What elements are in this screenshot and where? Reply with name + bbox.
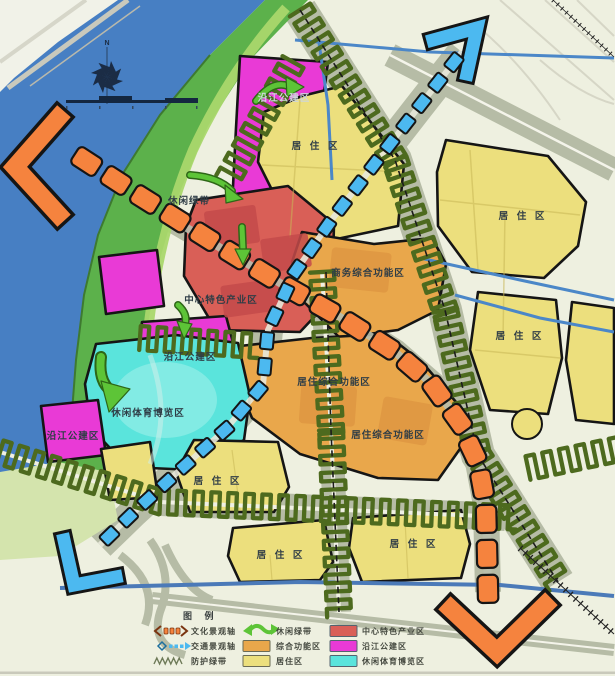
label-central-industry: 中心特色产业区 bbox=[184, 294, 258, 306]
legend-label-protection-green: 防护绿带 bbox=[191, 656, 227, 666]
legend-label-traffic-axis: 交通景观轴 bbox=[191, 641, 236, 651]
legend-label-comprehensive: 综合功能区 bbox=[276, 641, 321, 651]
label-residential-top-right: 居 住 区 bbox=[499, 210, 548, 222]
label-riverside-public-left: 沿江公建区 bbox=[47, 430, 100, 442]
axis-block bbox=[257, 358, 271, 376]
stadium-circle bbox=[512, 409, 542, 439]
legend-label-riverside-public: 沿江公建区 bbox=[362, 641, 407, 651]
label-residential-bottom-left: 居 住 区 bbox=[194, 475, 243, 487]
swatch-residential bbox=[243, 656, 270, 667]
legend-label-leisure-expo: 休闲体育博览区 bbox=[361, 656, 425, 666]
zone-residential-far-right bbox=[566, 302, 614, 424]
legend-title: 图 例 bbox=[183, 610, 219, 621]
axis-block bbox=[469, 469, 494, 500]
label-residential-complex-2: 居住综合功能区 bbox=[351, 429, 425, 441]
axis-block bbox=[260, 332, 274, 350]
compass-north-label: N bbox=[105, 40, 110, 47]
label-riverside-public-top: 沿江公建区 bbox=[258, 92, 311, 104]
legend-label-residential: 居住区 bbox=[276, 656, 303, 666]
swatch-comprehensive bbox=[243, 641, 270, 652]
axis-block bbox=[477, 575, 498, 603]
swatch-riverside-public bbox=[330, 641, 357, 652]
label-leisure-green-belt: 休闲绿带 bbox=[167, 195, 210, 207]
label-residential-right: 居 住 区 bbox=[496, 330, 545, 342]
legend-label-culture-axis: 文化景观轴 bbox=[191, 626, 236, 636]
swatch-central-industry bbox=[330, 626, 357, 637]
label-residential-complex-1: 居住综合功能区 bbox=[297, 376, 371, 388]
label-leisure-sports-expo: 休闲体育博览区 bbox=[110, 407, 185, 419]
label-business-complex: 商务综合功能区 bbox=[331, 267, 405, 279]
label-riverside-public-mid: 沿江公建区 bbox=[164, 351, 217, 363]
legend-label-leisure-green: 休闲绿带 bbox=[275, 626, 312, 636]
label-residential-bottom-right: 居 住 区 bbox=[390, 538, 439, 550]
map-bottom-border bbox=[0, 672, 615, 675]
label-residential-top: 居 住 区 bbox=[292, 140, 341, 152]
axis-block bbox=[476, 505, 497, 533]
urban-planning-map: 沿江公建区 居 住 区 休闲绿带 中心特色产业区 商务综合功能区 居住综合功能区… bbox=[0, 0, 615, 676]
axis-block bbox=[477, 540, 498, 568]
zone-riverside-public-small bbox=[99, 250, 164, 314]
label-residential-bottom-mid: 居 住 区 bbox=[257, 549, 306, 561]
swatch-leisure-expo bbox=[330, 656, 357, 667]
legend-label-central-industry: 中心特色产业区 bbox=[362, 626, 425, 636]
